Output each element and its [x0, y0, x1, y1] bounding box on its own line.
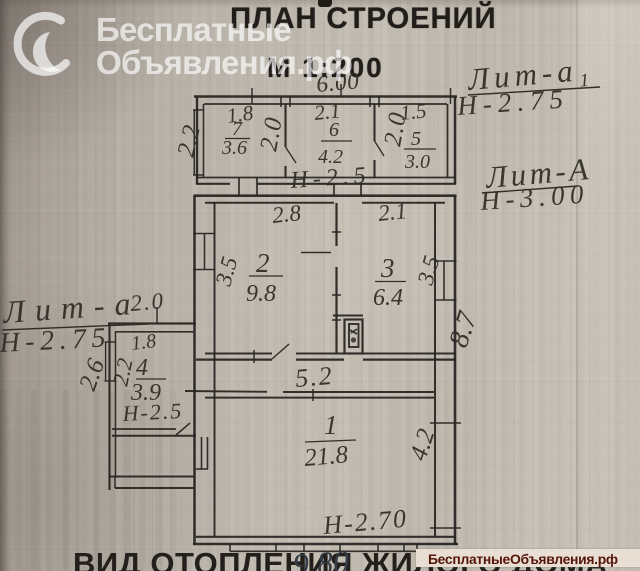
svg-text:Н-2.5: Н-2.5	[289, 162, 372, 194]
svg-text:2: 2	[256, 248, 270, 278]
svg-text:5.2: 5.2	[294, 361, 335, 393]
svg-text:6.4: 6.4	[373, 285, 403, 311]
svg-text:2.1: 2.1	[377, 198, 408, 226]
svg-text:1.8: 1.8	[130, 330, 157, 355]
svg-text:3.5: 3.5	[412, 253, 444, 288]
svg-text:1: 1	[324, 410, 338, 440]
svg-text:8.7: 8.7	[443, 307, 484, 351]
svg-text:9.8: 9.8	[246, 281, 276, 307]
svg-text:2.8: 2.8	[271, 200, 303, 228]
svg-text:Н-3.00: Н-3.00	[478, 178, 590, 216]
svg-text:Н-2.5: Н-2.5	[121, 398, 184, 426]
svg-text:21.8: 21.8	[303, 441, 349, 472]
svg-text:Н-2.75: Н-2.75	[0, 322, 112, 359]
svg-text:4: 4	[136, 355, 148, 381]
svg-text:3: 3	[380, 253, 395, 283]
svg-text:Н-2.70: Н-2.70	[321, 504, 409, 540]
